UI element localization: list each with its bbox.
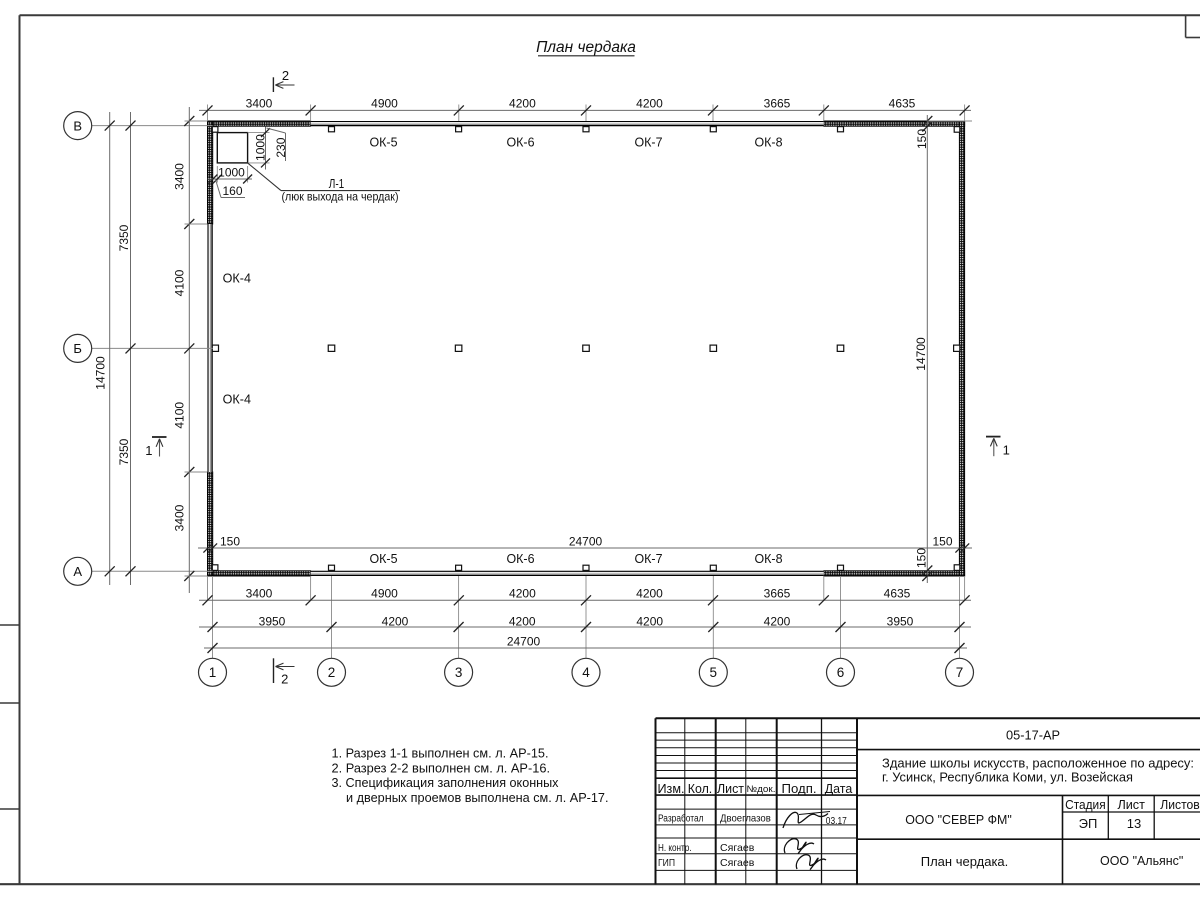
svg-text:Лист: Лист (1117, 797, 1145, 812)
svg-text:7350: 7350 (117, 224, 131, 251)
svg-text:150: 150 (932, 534, 952, 548)
svg-text:3400: 3400 (173, 163, 187, 190)
svg-text:7: 7 (956, 665, 964, 680)
svg-text:Дата: Дата (825, 781, 853, 796)
svg-text:4100: 4100 (173, 269, 187, 296)
svg-text:А: А (73, 564, 82, 579)
svg-text:4900: 4900 (371, 586, 398, 600)
svg-text:ОК-5: ОК-5 (370, 135, 398, 150)
svg-text:ОК-4: ОК-4 (223, 271, 251, 286)
svg-text:150: 150 (220, 534, 240, 548)
svg-text:4200: 4200 (509, 614, 536, 628)
svg-text:г. Усинск, Республика Коми, ул: г. Усинск, Республика Коми, ул. Возейска… (882, 769, 1133, 784)
svg-text:5: 5 (710, 665, 718, 680)
svg-text:13: 13 (1127, 816, 1141, 831)
svg-text:3400: 3400 (246, 96, 273, 110)
svg-text:Н. контр.: Н. контр. (658, 843, 692, 854)
svg-text:1000: 1000 (254, 134, 268, 161)
svg-text:4635: 4635 (884, 586, 911, 600)
svg-text:2. Разрез 2-2 выполнен см. л.: 2. Разрез 2-2 выполнен см. л. АР-16. (332, 760, 551, 775)
svg-text:2: 2 (328, 665, 336, 680)
svg-text:150: 150 (914, 548, 928, 568)
svg-text:4200: 4200 (382, 614, 409, 628)
svg-text:2: 2 (282, 68, 289, 83)
svg-text:4200: 4200 (636, 614, 663, 628)
svg-text:ОК-8: ОК-8 (755, 135, 783, 150)
svg-text:4200: 4200 (509, 96, 536, 110)
svg-text:150: 150 (915, 129, 929, 149)
svg-text:7350: 7350 (117, 438, 131, 465)
svg-text:План чердака.: План чердака. (921, 854, 1009, 869)
svg-text:6: 6 (837, 665, 845, 680)
svg-text:4200: 4200 (509, 586, 536, 600)
svg-text:ООО "СЕВЕР ФМ": ООО "СЕВЕР ФМ" (905, 812, 1012, 827)
svg-text:Листов: Листов (1160, 797, 1200, 812)
svg-text:В: В (73, 118, 82, 133)
svg-text:Сягаев: Сягаев (720, 857, 755, 869)
svg-text:2: 2 (281, 672, 288, 687)
svg-text:ЭП: ЭП (1079, 816, 1098, 831)
svg-text:3400: 3400 (246, 586, 273, 600)
svg-text:4200: 4200 (764, 614, 791, 628)
svg-text:1: 1 (1003, 443, 1010, 458)
svg-text:3665: 3665 (764, 96, 791, 110)
svg-text:Сягаев: Сягаев (720, 842, 755, 854)
svg-text:14700: 14700 (94, 356, 108, 390)
svg-text:24700: 24700 (569, 534, 603, 548)
svg-text:4: 4 (582, 665, 590, 680)
svg-text:3950: 3950 (887, 614, 914, 628)
svg-text:ОК-6: ОК-6 (507, 135, 535, 150)
svg-text:3: 3 (455, 665, 463, 680)
svg-text:4200: 4200 (636, 96, 663, 110)
svg-text:4100: 4100 (173, 402, 187, 429)
svg-text:и дверных проемов выполнена см: и дверных проемов выполнена см. л. АР-17… (346, 790, 609, 805)
svg-text:3. Спецификация заполнения око: 3. Спецификация заполнения оконных (332, 775, 559, 790)
svg-text:Здание школы искусств, располо: Здание школы искусств, расположенное по … (882, 755, 1194, 770)
svg-text:Б: Б (73, 341, 82, 356)
svg-text:4635: 4635 (889, 96, 916, 110)
svg-text:ОК-8: ОК-8 (755, 551, 783, 566)
svg-text:05-17-АР: 05-17-АР (1006, 728, 1060, 743)
svg-text:1: 1 (145, 443, 152, 458)
svg-text:1. Разрез 1-1 выполнен см. л.: 1. Разрез 1-1 выполнен см. л. АР-15. (332, 746, 549, 761)
svg-text:Стадия: Стадия (1065, 797, 1106, 812)
svg-text:160: 160 (222, 184, 242, 198)
svg-text:03.17: 03.17 (826, 815, 847, 827)
svg-text:(люк выхода на чердак): (люк выхода на чердак) (282, 191, 399, 204)
svg-text:3665: 3665 (764, 586, 791, 600)
svg-text:ОК-7: ОК-7 (635, 135, 663, 150)
svg-text:1: 1 (209, 665, 217, 680)
svg-text:14700: 14700 (914, 337, 928, 371)
svg-text:Кол.: Кол. (688, 781, 713, 796)
svg-text:3950: 3950 (259, 614, 286, 628)
svg-text:ОК-7: ОК-7 (635, 551, 663, 566)
svg-text:ООО "Альянс": ООО "Альянс" (1100, 853, 1184, 868)
svg-text:1000: 1000 (218, 166, 245, 180)
svg-text:ГИП: ГИП (658, 858, 675, 869)
svg-text:Изм.: Изм. (658, 781, 685, 796)
svg-text:Л-1: Л-1 (329, 177, 345, 191)
svg-text:Подп.: Подп. (782, 781, 817, 796)
svg-text:230: 230 (274, 137, 288, 157)
svg-text:Двоеглазов: Двоеглазов (720, 813, 771, 825)
svg-text:24700: 24700 (507, 635, 541, 649)
svg-text:ОК-4: ОК-4 (223, 392, 251, 407)
svg-text:№док.: №док. (747, 784, 776, 795)
svg-text:4900: 4900 (371, 96, 398, 110)
svg-text:ОК-6: ОК-6 (507, 551, 535, 566)
svg-text:План чердака: План чердака (536, 39, 636, 56)
svg-text:4200: 4200 (636, 586, 663, 600)
svg-text:Лист: Лист (717, 781, 744, 796)
svg-text:Разработал: Разработал (658, 813, 704, 825)
svg-text:ОК-5: ОК-5 (370, 551, 398, 566)
svg-text:3400: 3400 (173, 504, 187, 531)
